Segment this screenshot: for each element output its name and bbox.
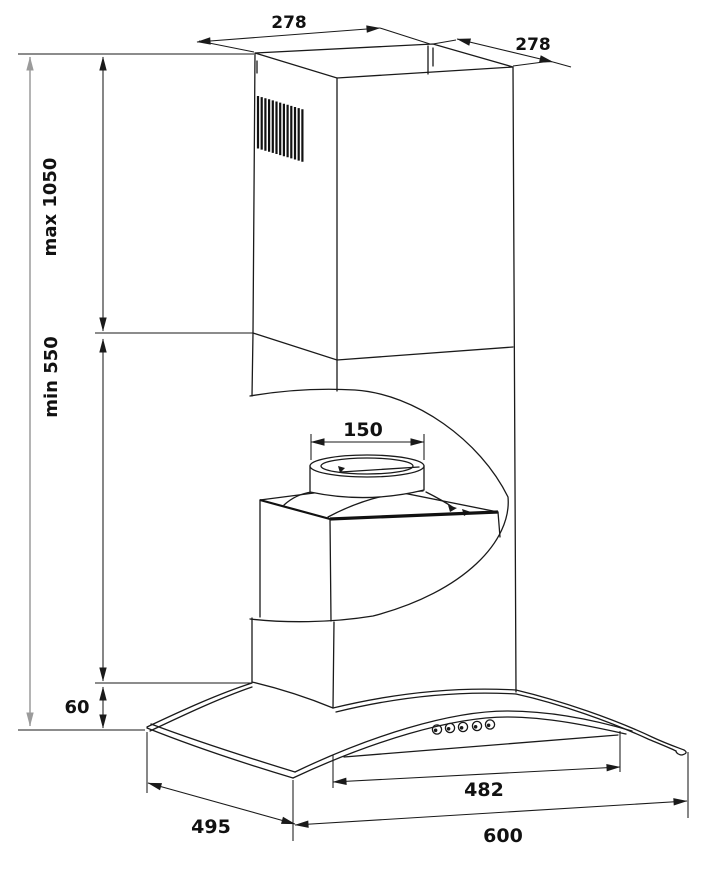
technical-drawing-page: max 1050 min 550 60 278 278 xyxy=(0,0,703,872)
dim-top-depth-label: 278 xyxy=(515,35,551,55)
hood-canopy xyxy=(147,682,686,778)
dim-control-width-label: 482 xyxy=(464,779,504,801)
dim-height-min-label: min 550 xyxy=(41,336,62,418)
dim-depth-label: 495 xyxy=(191,816,231,838)
dim-back-height-label: 60 xyxy=(64,697,89,718)
bottom-dimensions: 482 495 600 xyxy=(148,767,687,847)
cooker-hood-diagram: max 1050 min 550 60 278 278 xyxy=(0,0,703,872)
telescopic-joint xyxy=(253,333,513,360)
vent-grille xyxy=(258,96,302,162)
chimney-duct xyxy=(252,44,516,708)
chimney-top-opening xyxy=(255,44,513,78)
dim-duct-diameter-label: 150 xyxy=(343,419,383,441)
dim-width-line xyxy=(295,801,687,825)
height-dimensions: max 1050 min 550 60 xyxy=(30,57,103,728)
chimney-right-edge xyxy=(513,67,516,692)
chimney-front-edge xyxy=(333,78,337,708)
chimney-left-edge xyxy=(252,53,255,682)
dim-top-width-label: 278 xyxy=(271,13,307,33)
control-buttons xyxy=(432,720,494,734)
dim-width-label: 600 xyxy=(483,825,523,847)
detail-bubble: 150 xyxy=(250,389,508,621)
dim-height-max-label: max 1050 xyxy=(40,158,61,257)
extension-lines xyxy=(18,54,688,841)
